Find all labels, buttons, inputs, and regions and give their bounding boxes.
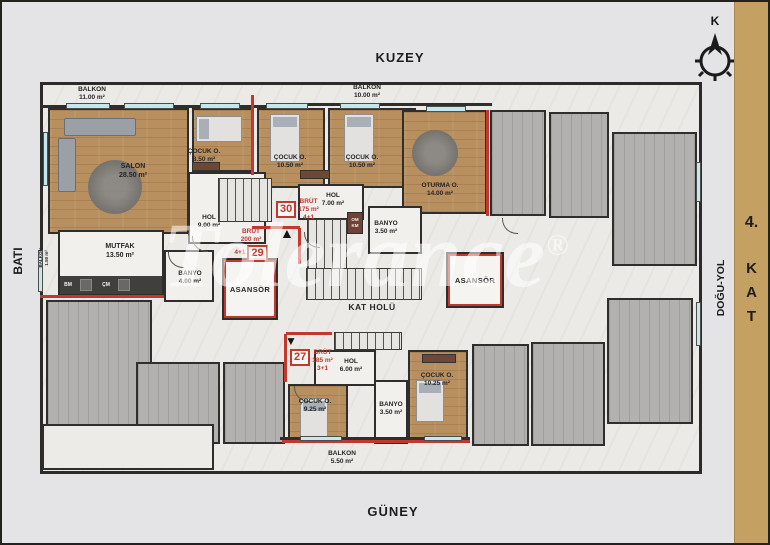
label-cm: ÇM xyxy=(98,282,114,288)
window-icon xyxy=(424,436,462,441)
window-icon xyxy=(266,103,308,109)
floor-number: 4. xyxy=(735,214,768,232)
room-gray-5 xyxy=(472,344,529,446)
compass-north-label: K xyxy=(702,14,728,28)
window-icon xyxy=(43,132,48,186)
stair-core-main xyxy=(306,268,422,300)
label-banyo-350-lower: BANYO3.50 m² xyxy=(364,401,418,418)
red-line-kitchen xyxy=(40,295,164,298)
room-gray-9 xyxy=(223,362,285,444)
unit-29-type: 4+1 xyxy=(234,249,245,257)
label-oturma: OTURMA O.14.00 m² xyxy=(405,182,475,199)
label-balkon-150: BALKON1.50 m² xyxy=(38,236,50,280)
stair-unit27 xyxy=(334,332,402,350)
window-icon xyxy=(200,103,240,109)
label-balkon-1100: BALKON11.00 m² xyxy=(52,86,132,103)
bed-cocuk-850 xyxy=(196,116,242,142)
window-icon xyxy=(300,436,342,441)
unit-27-info: BRÜT185 m²3+1 xyxy=(312,349,333,372)
label-cocuk-1050a: ÇOCUK O.10.50 m² xyxy=(260,154,320,171)
sofa-salon-side xyxy=(58,138,76,192)
direction-south: GÜNEY xyxy=(348,504,438,519)
unit-29-brut: BRÜT xyxy=(228,228,274,236)
label-balkon-550: BALKON5.50 m² xyxy=(312,450,372,467)
label-salon: SALON28.50 m² xyxy=(98,162,168,180)
elevator-left-label: ASANSÖR xyxy=(230,285,270,294)
red-divider-29-30 xyxy=(251,95,254,175)
floor-number-strip: 4. K A T xyxy=(734,2,768,545)
label-bm: BM xyxy=(60,282,76,288)
label-cocuk-1050b: ÇOCUK O.10.50 m² xyxy=(332,154,392,171)
window-icon xyxy=(426,106,466,112)
red-entry-30 xyxy=(298,228,301,264)
direction-west: BATI xyxy=(5,233,31,289)
closet-cocuk-1025 xyxy=(422,354,456,363)
sofa-salon xyxy=(64,118,136,136)
label-mutfak: MUTFAK13.50 m² xyxy=(86,242,154,260)
label-cocuk-1025: ÇOCUK O.10.25 m² xyxy=(408,372,466,389)
label-kat-holu: KAT HOLÜ xyxy=(332,302,412,313)
rug-oturma xyxy=(412,130,458,176)
appliance-icon xyxy=(118,279,130,291)
floor-letter-k: K xyxy=(735,260,768,277)
unit-27-number: 27 xyxy=(290,349,310,366)
label-cocuk-850: ÇOCUK O.8.50 m² xyxy=(174,148,234,165)
elevator-right-label: ASANSÖR xyxy=(455,276,495,285)
room-gray-1 xyxy=(490,110,546,216)
unit-29-area: 200 m² xyxy=(228,236,274,244)
entry-arrow-down-icon: ▼ xyxy=(285,335,297,347)
unit-29-block: BRÜT 200 m² 4+1 29 xyxy=(228,228,274,262)
room-gray-4 xyxy=(607,298,693,424)
window-icon xyxy=(124,103,174,109)
direction-east: DOĞU-YOL xyxy=(711,251,731,325)
red-divider-right xyxy=(486,110,489,216)
window-icon xyxy=(696,162,701,202)
floor-plan-page: ASANSÖR ASANSÖR BM ÇM OM KM xyxy=(0,0,770,545)
window-icon xyxy=(66,103,110,109)
room-gray-6 xyxy=(531,342,605,446)
direction-north: KUZEY xyxy=(352,50,448,65)
elevator-left: ASANSÖR xyxy=(224,260,276,318)
entry-arrow-up-icon: ▲ xyxy=(280,226,294,240)
unit-30-info: BRÜT175 m²4+1 xyxy=(298,198,319,221)
room-gray-2 xyxy=(549,112,609,218)
window-icon xyxy=(340,103,380,109)
room-gray-3 xyxy=(612,132,697,266)
closet-cocuk-1050a xyxy=(300,170,330,179)
unit-30-block: 30 BRÜT175 m²4+1 xyxy=(276,198,319,221)
label-banyo-400: BANYO4.00 m² xyxy=(162,270,218,287)
floor-letter-a: A xyxy=(735,284,768,301)
unit-29-number: 29 xyxy=(247,245,267,262)
label-banyo-350-upper: BANYO3.50 m² xyxy=(358,220,414,237)
window-icon xyxy=(696,302,701,346)
unit-30-number: 30 xyxy=(276,201,296,218)
floor-letter-t: T xyxy=(735,308,768,325)
label-balkon-1000: BALKON10.00 m² xyxy=(327,84,407,101)
elevator-right: ASANSÖR xyxy=(448,254,502,306)
label-cocuk-925: ÇOCUK O.9.25 m² xyxy=(286,398,344,415)
terrace-bottom-left xyxy=(42,424,214,470)
appliance-icon xyxy=(80,279,92,291)
unit-27-block: 27 BRÜT185 m²3+1 xyxy=(290,349,333,372)
